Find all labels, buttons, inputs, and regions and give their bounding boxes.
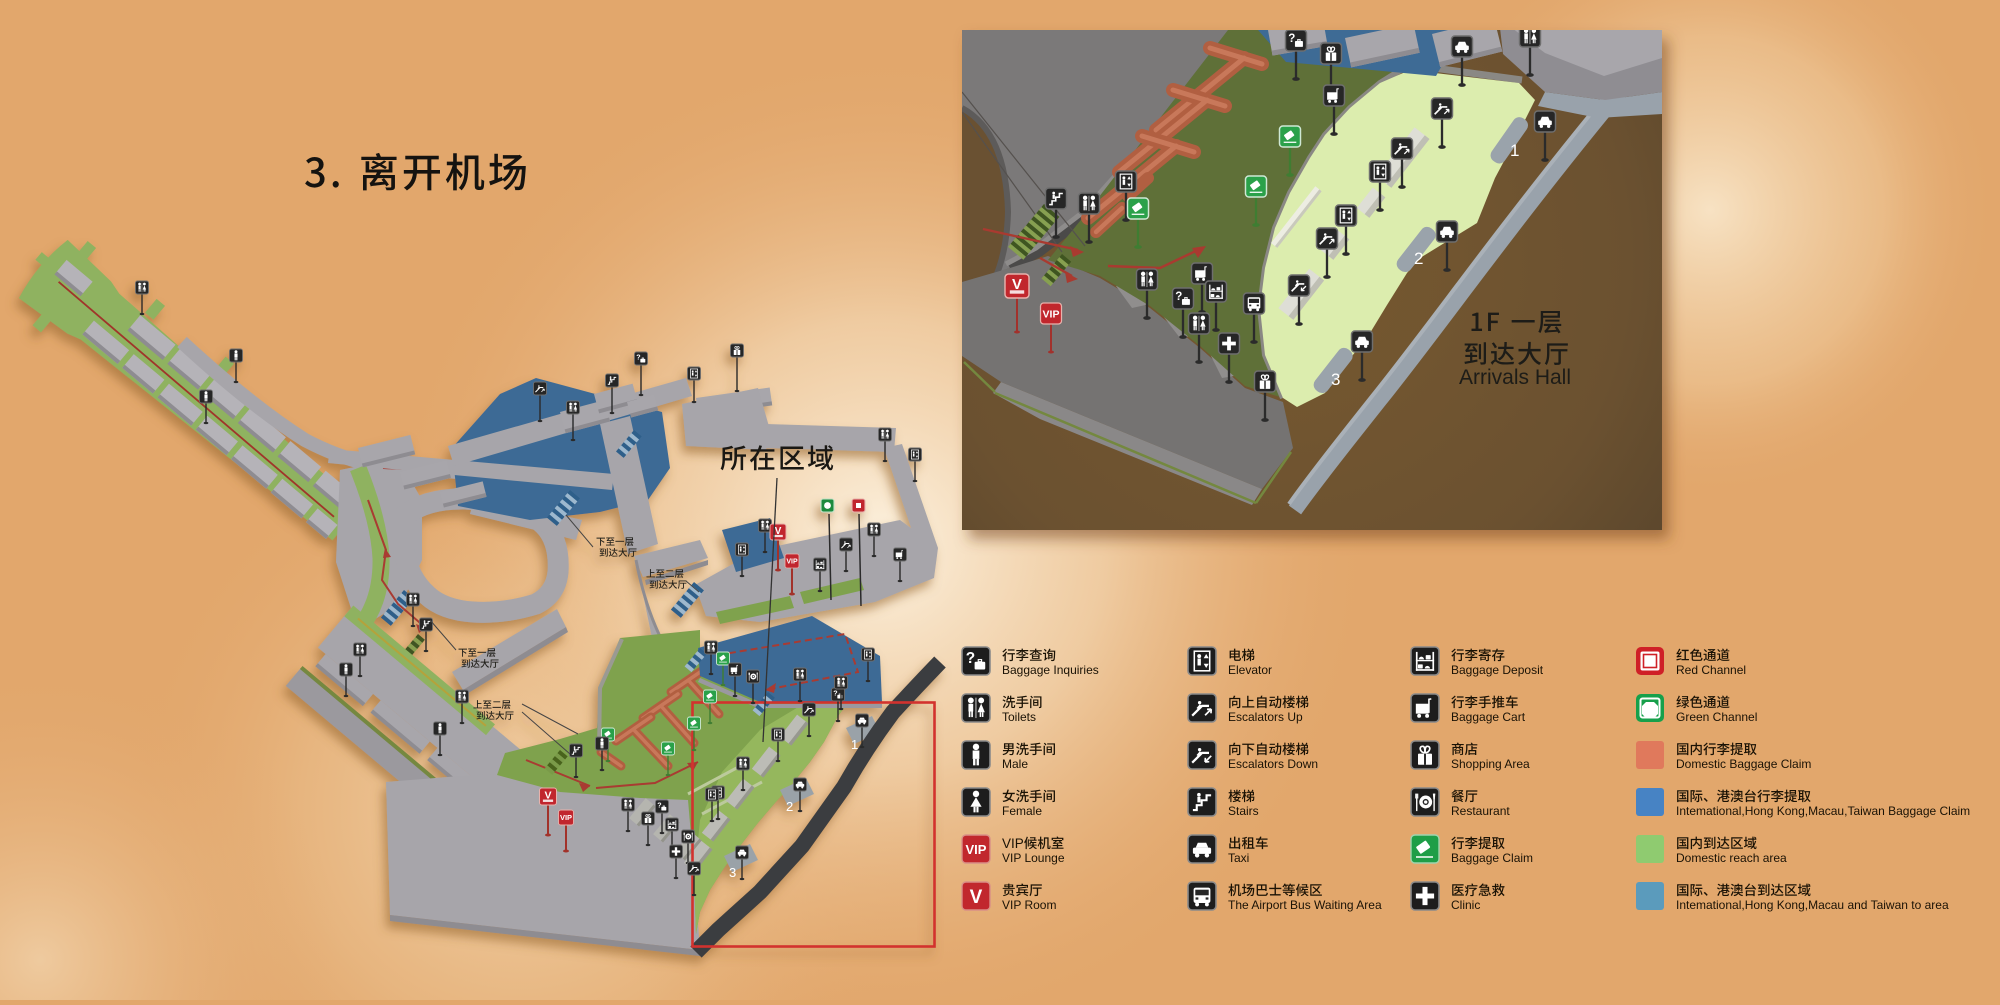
svg-text:女洗手间: 女洗手间 [1002,785,1056,805]
svg-text:Intemational,Hong Kong,Macau,T: Intemational,Hong Kong,Macau,Taiwan Bagg… [1676,804,1970,818]
svg-text:国内行李提取: 国内行李提取 [1676,738,1757,758]
svg-text:行李提取: 行李提取 [1451,832,1505,852]
svg-text:到达大厅: 到达大厅 [461,656,500,670]
svg-text:Female: Female [1002,804,1042,818]
svg-text:Arrivals Hall: Arrivals Hall [1459,366,1571,389]
svg-text:Intemational,Hong Kong,Macau a: Intemational,Hong Kong,Macau and Taiwan … [1676,898,1949,912]
svg-text:所在区域: 所在区域 [720,437,836,476]
svg-text:VIP: VIP [1043,308,1060,320]
svg-text:男洗手间: 男洗手间 [1002,738,1056,758]
svg-text:国内到达区域: 国内到达区域 [1676,832,1757,852]
svg-text:Domestic reach area: Domestic reach area [1676,851,1787,865]
svg-text:行李手推车: 行李手推车 [1451,691,1519,711]
svg-text:VIP Room: VIP Room [1002,898,1056,912]
svg-text:餐厅: 餐厅 [1451,785,1478,805]
svg-text:2: 2 [1414,249,1423,268]
svg-text:国际、港澳台行李提取: 国际、港澳台行李提取 [1676,785,1811,805]
svg-text:3. 离开机场: 3. 离开机场 [304,141,531,199]
svg-text:绿色通道: 绿色通道 [1676,691,1730,711]
svg-text:医疗急救: 医疗急救 [1451,879,1505,899]
svg-text:VIP候机室: VIP候机室 [1002,832,1064,852]
svg-text:2: 2 [786,799,793,814]
svg-text:到达大厅: 到达大厅 [599,545,638,559]
svg-text:向下自动楼梯: 向下自动楼梯 [1228,738,1309,758]
svg-text:?: ? [966,650,975,667]
svg-text:?: ? [1175,291,1182,303]
svg-text:VIP: VIP [786,559,798,566]
svg-text:Escalators Up: Escalators Up [1228,710,1303,724]
svg-text:Baggage Claim: Baggage Claim [1451,851,1533,865]
svg-text:商店: 商店 [1451,738,1478,758]
svg-text:到达大厅: 到达大厅 [476,708,515,722]
svg-text:Domestic Baggage Claim: Domestic Baggage Claim [1676,757,1811,771]
svg-text:Shopping Area: Shopping Area [1451,757,1530,771]
svg-text:?: ? [657,801,661,809]
svg-text:Escalators Down: Escalators Down [1228,757,1318,771]
svg-text:VIP: VIP [966,842,987,857]
svg-text:V: V [970,887,983,908]
svg-text:Restaurant: Restaurant [1451,804,1510,818]
svg-text:电梯: 电梯 [1228,644,1255,664]
svg-text:Baggage Deposit: Baggage Deposit [1451,663,1544,677]
svg-text:行李寄存: 行李寄存 [1451,644,1505,664]
svg-text:?: ? [1288,33,1295,45]
svg-text:?: ? [833,689,837,697]
svg-text:Clinic: Clinic [1451,898,1480,912]
svg-text:机场巴士等候区: 机场巴士等候区 [1228,879,1323,899]
svg-text:3: 3 [729,865,736,880]
svg-text:洗手间: 洗手间 [1002,691,1043,711]
svg-text:Toilets: Toilets [1002,710,1036,724]
svg-text:向上自动楼梯: 向上自动楼梯 [1228,691,1309,711]
svg-text:贵宾厅: 贵宾厅 [1002,879,1043,899]
svg-text:The Airport Bus Waiting Area: The Airport Bus Waiting Area [1228,898,1382,912]
svg-text:1: 1 [851,737,858,752]
svg-text:Elevator: Elevator [1228,663,1272,677]
svg-text:1: 1 [1510,141,1519,160]
svg-text:Male: Male [1002,757,1028,771]
svg-text:楼梯: 楼梯 [1228,785,1255,805]
svg-text:红色通道: 红色通道 [1676,644,1730,664]
svg-text:Taxi: Taxi [1228,851,1249,865]
svg-text:VIP Lounge: VIP Lounge [1002,851,1065,865]
svg-text:出租车: 出租车 [1228,832,1269,852]
svg-text:VIP: VIP [560,813,572,822]
svg-text:3: 3 [1331,370,1340,389]
svg-text:1F 一层: 1F 一层 [1469,303,1564,339]
svg-text:国际、港澳台到达区域: 国际、港澳台到达区域 [1676,879,1811,899]
svg-text:Baggage Cart: Baggage Cart [1451,710,1526,724]
svg-text:Red Channel: Red Channel [1676,663,1746,677]
svg-text:Green Channel: Green Channel [1676,710,1757,724]
svg-text:到达大厅: 到达大厅 [649,577,688,591]
svg-text:行李查询: 行李查询 [1002,644,1056,664]
svg-text:?: ? [636,353,640,361]
svg-text:Baggage Inquiries: Baggage Inquiries [1002,663,1099,677]
svg-text:Stairs: Stairs [1228,804,1259,818]
